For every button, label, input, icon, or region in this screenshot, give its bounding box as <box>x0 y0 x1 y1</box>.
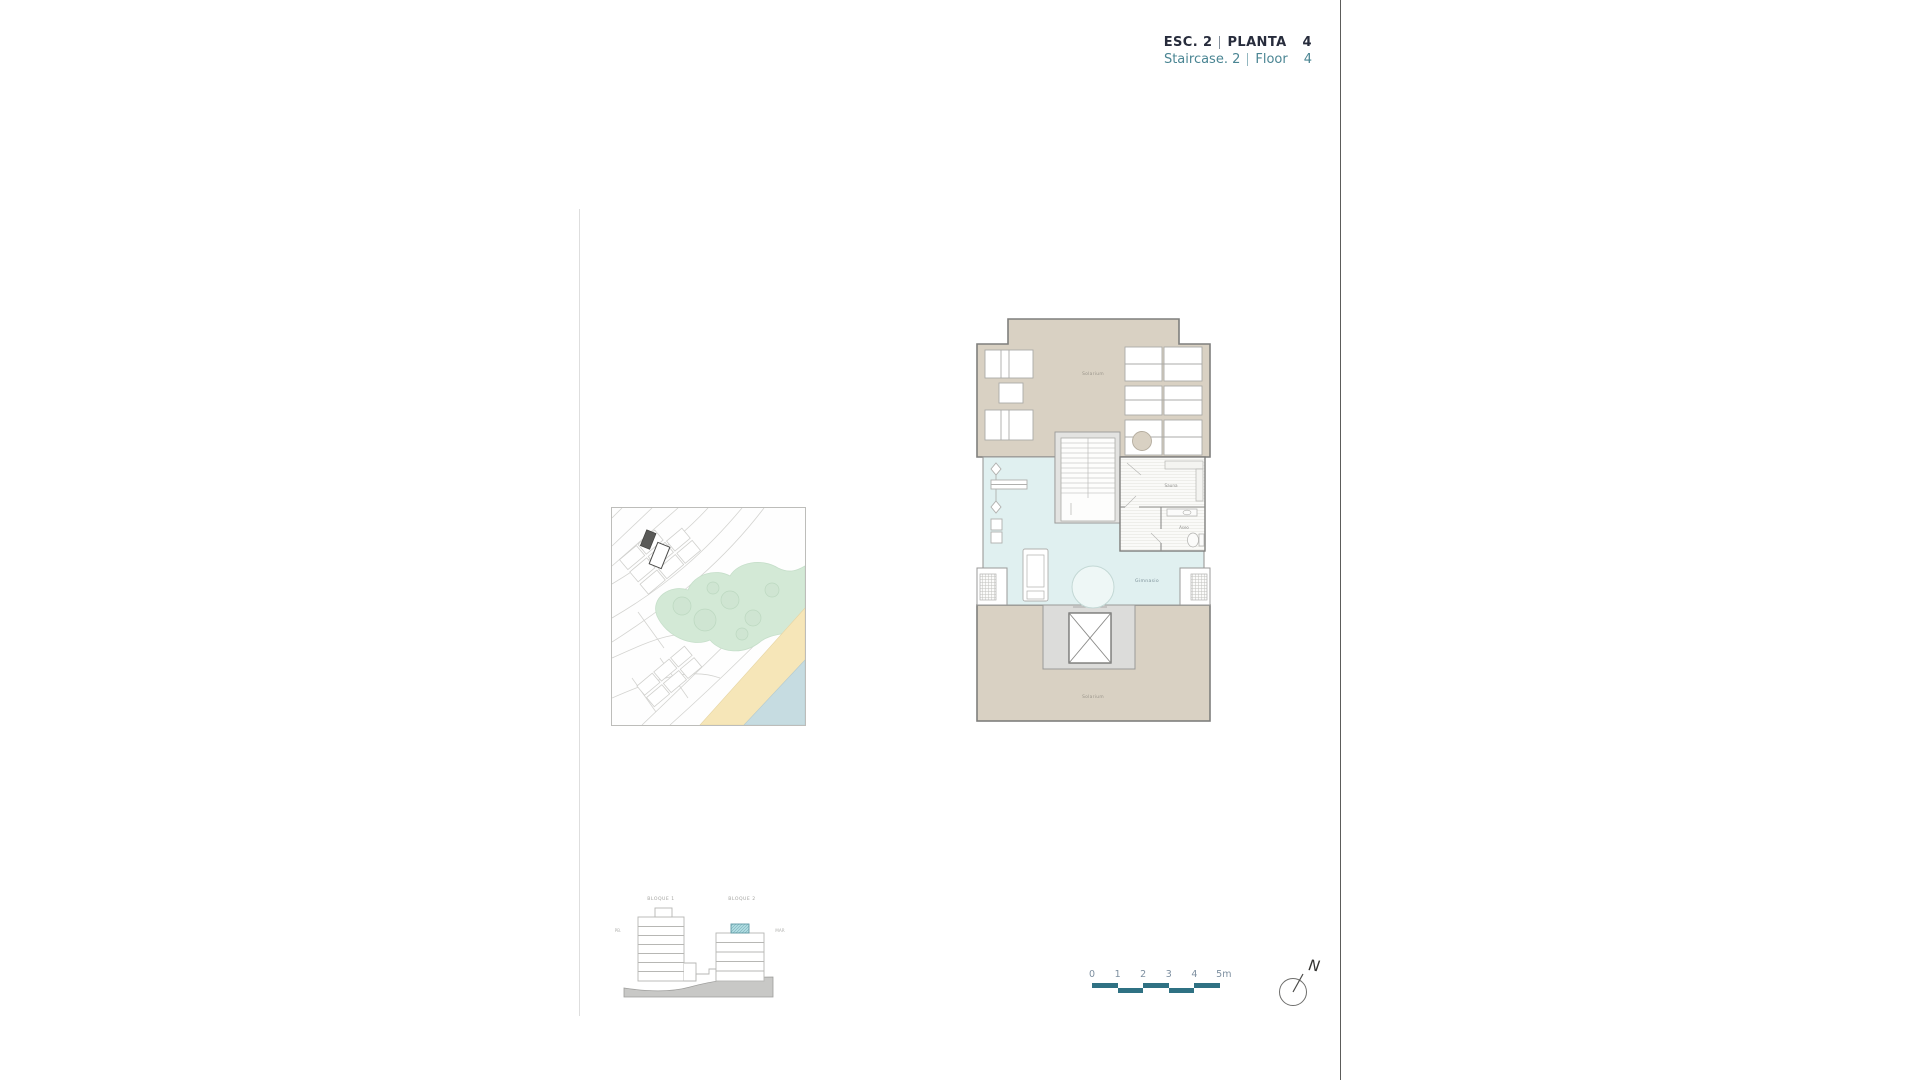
gym-alcove-right <box>1180 568 1210 605</box>
title-divider <box>1219 36 1220 49</box>
compass-needle <box>1293 974 1303 992</box>
floor-number: 4 <box>1304 53 1312 66</box>
scale-tick: 0 <box>1089 969 1095 980</box>
title-row-english: Staircase. 2 Floor 4 <box>1164 53 1312 66</box>
staircase <box>1055 432 1120 523</box>
building-elevation: BLOQUE 1 BLOQUE 2 PB. MAR <box>610 891 790 1006</box>
scale-tick: 1 <box>1115 969 1121 980</box>
elevation-right-label: MAR <box>775 928 784 933</box>
scale-bar: 0 1 2 3 4 5m <box>1084 969 1236 999</box>
gym-alcove-left <box>977 568 1007 605</box>
block1-building <box>638 908 716 981</box>
page-divider-left <box>579 209 580 1016</box>
solarium-bottom-label: Solarium <box>1082 694 1104 700</box>
north-label: N <box>1307 956 1321 975</box>
scale-bar-segment <box>1143 983 1169 988</box>
north-arrow-drawing: N <box>1270 948 1330 1012</box>
block2-building <box>716 933 764 981</box>
elevation-drawing: BLOQUE 1 BLOQUE 2 PB. MAR <box>610 891 790 1006</box>
gym-circle-feature <box>1072 566 1114 608</box>
scale-tick: 5m <box>1216 969 1231 980</box>
site-map-drawing <box>612 508 805 725</box>
elevation-left-label: PB. <box>615 928 622 933</box>
scale-bar-segment <box>1092 983 1118 988</box>
planta-label: PLANTA <box>1227 36 1286 49</box>
scale-bar-segment <box>1169 988 1195 993</box>
scale-bar-segment <box>1194 983 1220 988</box>
floor-plan: Solarium Sauna Aseo Gimnasio Solarium <box>975 317 1212 723</box>
scale-bar-segment <box>1118 988 1144 993</box>
planta-number: 4 <box>1303 36 1312 49</box>
gym-label: Gimnasio <box>1135 578 1159 584</box>
scale-tick: 2 <box>1140 969 1146 980</box>
sauna-label: Sauna <box>1164 483 1178 488</box>
block1-label: BLOQUE 1 <box>647 896 674 902</box>
block2-label: BLOQUE 2 <box>728 896 755 902</box>
north-arrow: N <box>1270 948 1330 1012</box>
floor-plan-drawing: Solarium Sauna Aseo Gimnasio Solarium <box>975 317 1212 723</box>
floor-label: Floor <box>1255 53 1287 66</box>
site-location-map <box>611 507 806 726</box>
title-divider <box>1247 53 1248 66</box>
title-row-spanish: ESC. 2 PLANTA 4 <box>1164 36 1312 49</box>
toilet-label: Aseo <box>1179 525 1189 530</box>
highlighted-floor <box>731 924 749 933</box>
esc-label: ESC. 2 <box>1164 36 1213 49</box>
elevator <box>1043 605 1135 669</box>
solarium-top-label: Solarium <box>1082 371 1104 377</box>
title-block: ESC. 2 PLANTA 4 Staircase. 2 Floor 4 <box>1164 36 1312 66</box>
page-divider-right <box>1340 0 1341 1080</box>
staircase-label: Staircase. 2 <box>1164 53 1240 66</box>
scale-tick: 4 <box>1191 969 1197 980</box>
round-table <box>1133 432 1152 451</box>
scale-tick: 3 <box>1166 969 1172 980</box>
